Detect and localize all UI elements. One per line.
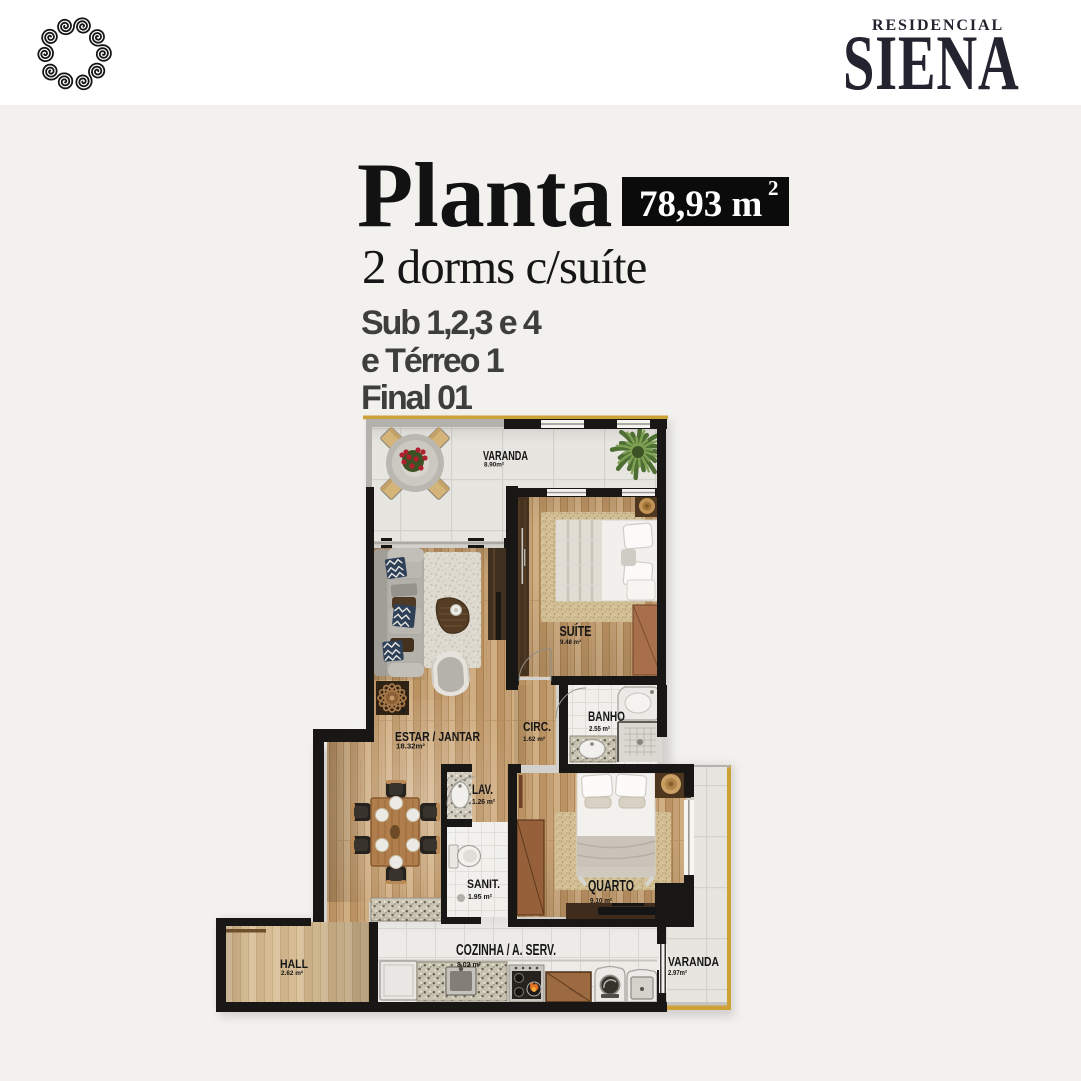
svg-text:LAV.: LAV.	[472, 782, 493, 797]
svg-text:ESTAR / JANTAR: ESTAR / JANTAR	[395, 729, 480, 744]
svg-text:2.62 m²: 2.62 m²	[281, 970, 304, 977]
svg-text:SANIT.: SANIT.	[467, 877, 500, 891]
svg-text:8.90m²: 8.90m²	[484, 462, 505, 469]
svg-text:9.10 m²: 9.10 m²	[590, 898, 613, 905]
svg-text:8.02 m²: 8.02 m²	[457, 960, 481, 969]
svg-text:SUÍTE: SUÍTE	[560, 623, 592, 640]
svg-text:BANHO: BANHO	[588, 709, 625, 724]
svg-text:COZINHA / A. SERV.: COZINHA / A. SERV.	[456, 942, 556, 959]
svg-text:1.26 m²: 1.26 m²	[472, 799, 496, 806]
svg-text:18.32m²: 18.32m²	[396, 744, 426, 751]
svg-text:VARANDA: VARANDA	[668, 955, 719, 969]
svg-text:1.62 m²: 1.62 m²	[523, 736, 546, 743]
svg-text:2.55 m²: 2.55 m²	[589, 726, 611, 733]
svg-text:CIRC.: CIRC.	[523, 719, 551, 734]
svg-text:9.48 m²: 9.48 m²	[560, 639, 582, 646]
svg-text:2.97m²: 2.97m²	[668, 970, 688, 977]
svg-text:QUARTO: QUARTO	[588, 878, 634, 895]
svg-text:1.95 m²: 1.95 m²	[468, 894, 493, 901]
